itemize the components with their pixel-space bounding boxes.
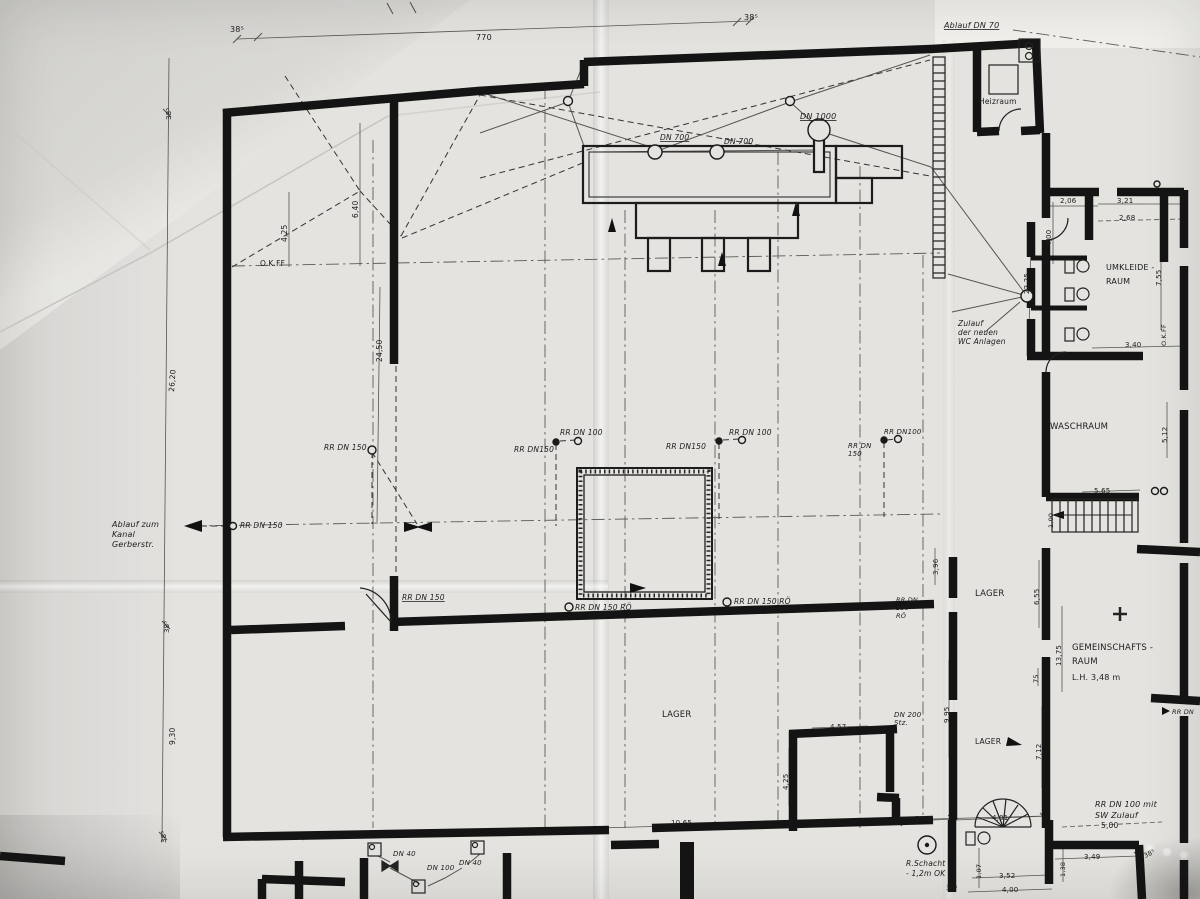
manhole-dn1000	[808, 119, 830, 141]
plan-label: DN 100	[427, 864, 455, 872]
plan-label: RR DN 100	[729, 428, 772, 437]
plan-label: RR DN 150 RÖ	[575, 603, 632, 612]
plan-label: 75	[1032, 674, 1040, 683]
plan-label: 38⁵	[230, 25, 244, 34]
plan-label: RR DN150	[848, 442, 872, 458]
plan-label: RR DN 150	[324, 443, 367, 452]
plan-label: WASCHRAUM	[1050, 422, 1108, 432]
plan-label: DN 200Stz.	[894, 711, 922, 727]
plan-label: 2,52	[915, 815, 931, 823]
plan-label: RR DN 150	[240, 521, 283, 530]
spiral-stair-icon	[975, 799, 1031, 827]
plan-label: 5,00	[1101, 821, 1119, 830]
plan-label: O.K.FF	[1160, 324, 1168, 346]
toilet-icon	[966, 832, 990, 845]
plan-label: 1,00	[1047, 513, 1055, 528]
sink-icon	[471, 841, 484, 854]
plan-label: 22,25	[1023, 273, 1031, 294]
manhole-dn700	[710, 145, 724, 159]
plan-label: DN 700	[724, 137, 753, 146]
plan-label: RR DN150	[666, 442, 706, 451]
plan-label: 5,65	[1094, 487, 1110, 495]
plan-label: L.H. 3,48 m	[1072, 673, 1120, 682]
plan-label: RR DN 150	[402, 593, 445, 602]
manhole-dn700	[648, 145, 662, 159]
fixtures	[360, 39, 1138, 893]
plan-label: O.K.FF	[260, 259, 285, 268]
scanned-floor-plan-photo: { "plan": { "paper_color": "#e4e3df", "i…	[0, 0, 1200, 899]
toilet-icon	[1065, 328, 1089, 341]
plan-label: 26,20	[167, 369, 178, 392]
plan-label: DN 700	[660, 133, 689, 142]
plan-label: Heizraum	[979, 97, 1017, 106]
plan-label: 13,75	[1055, 645, 1063, 666]
toilet-icon	[1065, 288, 1089, 301]
door-arc	[999, 109, 1021, 131]
floor-plan-drawing: 38⁵77038⁵Ablauf DN 70HeizraumDN 1000DN 7…	[0, 0, 1200, 899]
plan-label: 3,52	[999, 872, 1015, 880]
plan-label: 770	[476, 33, 492, 42]
plan-label: 3,21	[1117, 197, 1133, 205]
plan-label: RR DN 100 mitSW Zulauf	[1095, 800, 1158, 820]
plan-label: 5,12	[1161, 427, 1169, 443]
plan-label: LAGER	[662, 710, 691, 720]
plan-label: RR DN150	[514, 445, 554, 454]
cross-symbol	[1113, 607, 1127, 621]
plan-label: 9,30	[168, 727, 177, 745]
plan-label: UMKLEIDE -RAUM	[1106, 263, 1155, 286]
plan-label: 3,49	[1084, 853, 1100, 861]
plan-label: DN 1000	[800, 112, 836, 121]
plan-label: HE	[1189, 549, 1200, 558]
plan-label: 38⁵	[163, 621, 171, 633]
plan-label: 38⁵	[160, 831, 168, 843]
plan-label: 6,40	[351, 200, 360, 218]
plan-label: RR DN 150 RÖ	[734, 597, 791, 606]
plan-label: R.Schacht- 1,2m OK	[906, 859, 946, 878]
plan-label: 4,00	[1045, 230, 1053, 246]
plan-label: 9,95	[943, 707, 951, 723]
plan-label: 4,01	[992, 814, 1008, 822]
plan-label: GEMEINSCHAFTS -RAUM	[1072, 643, 1153, 667]
sink-icon	[412, 880, 425, 893]
plan-label: DN 40	[459, 859, 482, 867]
arrow-to-kanal	[184, 520, 202, 532]
plan-label: 38⁵	[744, 13, 758, 22]
plan-label: 3,96	[932, 558, 940, 575]
boiler-icon	[989, 65, 1018, 94]
plan-label: Ablauf zumKanalGerberstr.	[111, 520, 159, 549]
plan-label: 7,55	[1155, 270, 1163, 286]
plan-label: DN 40	[393, 850, 416, 858]
plan-label: 38⁵	[946, 884, 958, 892]
central-basin	[577, 468, 712, 599]
plan-label: RR DN	[1172, 708, 1194, 716]
door-arc	[360, 588, 391, 622]
plan-label: 6,55	[1033, 589, 1041, 605]
plan-label: 3,40	[1125, 341, 1141, 349]
crease-lines	[0, 92, 600, 332]
plan-label: RR DN100	[884, 428, 922, 436]
plan-label: 38⁵	[165, 108, 173, 120]
plan-label: 4,57	[830, 723, 846, 731]
plan-label: 10,65	[671, 819, 692, 827]
toilet-icon	[1065, 260, 1089, 273]
valve-icon	[382, 861, 398, 871]
plan-label: LAGER	[975, 589, 1004, 599]
plan-label: 2,68	[1119, 214, 1135, 222]
plan-label: RR DN 100	[560, 428, 603, 437]
chimney-hatch	[933, 57, 945, 278]
plan-label: Ablauf DN 70	[943, 21, 999, 30]
plan-label: 4,25	[782, 774, 790, 790]
sink-icon	[368, 843, 381, 856]
lager-arrow	[1006, 737, 1022, 746]
construction-lines	[378, 55, 1027, 886]
plan-label: 1,07	[975, 864, 983, 879]
plan-label: 4,00	[1002, 886, 1018, 894]
plan-label: 2,06	[1060, 197, 1077, 205]
plan-label: 1,38	[1059, 862, 1067, 877]
rrdn-triangle	[1162, 707, 1170, 715]
plan-label: 7,12	[1035, 744, 1043, 760]
plan-label: 24,50	[375, 340, 384, 362]
plan-label: LAGER	[975, 737, 1001, 746]
plan-label: 38⁵	[1142, 848, 1156, 860]
plan-label: Zulaufder neuenWC Anlagen	[957, 319, 1006, 346]
plan-label: 4,25	[280, 224, 289, 242]
